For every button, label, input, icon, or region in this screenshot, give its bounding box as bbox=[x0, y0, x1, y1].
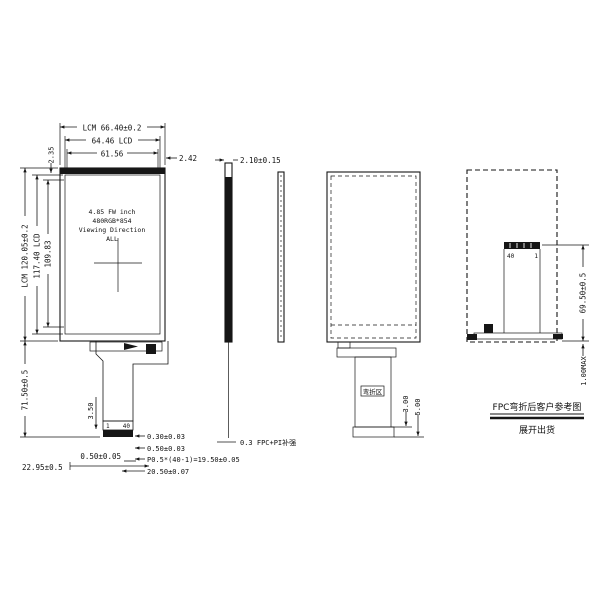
pin-pitch-b-dim: 0.50±0.03 bbox=[147, 445, 185, 453]
lcm-width-dim: LCM 66.40±0.2 bbox=[83, 124, 142, 133]
right-border-dim: 2.42 bbox=[179, 154, 197, 163]
lcd-outline bbox=[65, 175, 160, 334]
engineering-drawing: 4.85 FW inch 480RGB*854 Viewing Directio… bbox=[0, 0, 600, 600]
aa-height-dim: 109.83 bbox=[44, 240, 53, 267]
back-inner-dashed bbox=[331, 176, 416, 338]
fpc-pin1-label: 1 bbox=[106, 423, 110, 430]
fpc-note-text: 0.3 FPC+PI补强 bbox=[240, 438, 296, 447]
folded-pin40-label: 40 bbox=[507, 253, 515, 260]
lcm-top-band bbox=[60, 168, 165, 174]
spec-resolution: 480RGB*854 bbox=[92, 217, 131, 225]
bend-zone-label: 弯折区 bbox=[363, 387, 383, 396]
fpc-edge-offset-dim: 0.50±0.05 bbox=[80, 452, 121, 461]
fpc-pin40-label: 40 bbox=[123, 423, 131, 430]
spec-size: 4.85 FW inch bbox=[89, 208, 136, 216]
lcm-height-dim: LCM 120.05±0.2 bbox=[21, 224, 30, 287]
folded-note: FPC弯折后客户参考图 bbox=[493, 401, 582, 413]
spec-viewing-all: ALL bbox=[106, 235, 118, 243]
folded-right-foot bbox=[553, 334, 563, 339]
fpc-unfolded-shoulder bbox=[337, 348, 396, 357]
lcm-outline bbox=[60, 168, 165, 341]
unfolded-note: 展开出货 bbox=[519, 424, 555, 436]
lcd-width-dim: 64.46 LCD bbox=[92, 137, 133, 146]
back-view-folded: 40 1 69.50±0.5 1.00MAX bbox=[467, 170, 589, 386]
bend-a-dim: 3.00 bbox=[402, 396, 410, 413]
thickness-dim: 2.10±0.15 bbox=[240, 156, 281, 165]
front-fpc: 1 40 bbox=[90, 341, 168, 437]
lcd-height-dim: 117.40 LCD bbox=[33, 233, 42, 279]
top-dimensions: LCM 66.40±0.2 64.46 LCD 61.56 2.42 2.35 bbox=[48, 122, 198, 173]
fpc-arrow-mark bbox=[124, 343, 138, 350]
back-fpc-step bbox=[338, 342, 350, 348]
side-profile-body bbox=[226, 177, 232, 342]
bottom-dimensions: 0.50±0.05 22.95±0.5 0.30±0.03 0.50±0.03 … bbox=[22, 433, 240, 476]
fpc-position-dim: 22.95±0.5 bbox=[22, 463, 63, 472]
folded-fpc-sides bbox=[504, 249, 540, 333]
spec-viewing-direction: Viewing Direction bbox=[79, 226, 146, 234]
folded-left-foot bbox=[467, 334, 477, 340]
fold-height-dim: 69.50±0.5 bbox=[579, 273, 588, 314]
back-view-unfolded: 弯折区 3.00 5.00 bbox=[327, 172, 424, 437]
folded-bottom-bar bbox=[474, 333, 562, 339]
fpc-component bbox=[146, 344, 156, 354]
fpc-outline bbox=[96, 341, 168, 421]
fpc-tail-dim: 3.50 bbox=[87, 403, 95, 420]
fpc-unfolded-end bbox=[353, 427, 394, 437]
fold-gap-dim: 1.00MAX bbox=[580, 355, 588, 385]
side-view-secondary bbox=[278, 172, 284, 342]
bend-b-dim: 5.00 bbox=[414, 399, 422, 416]
top-border-dim: 2.35 bbox=[48, 147, 56, 164]
folded-connector bbox=[504, 242, 540, 249]
connector-width-dim: 20.50±0.07 bbox=[147, 468, 189, 476]
folded-component bbox=[484, 324, 493, 333]
lcd-module-drawing-page: 4.85 FW inch 480RGB*854 Viewing Directio… bbox=[0, 0, 600, 600]
pin-span-dim: P0.5*(40-1)=19.50±0.05 bbox=[147, 456, 240, 464]
front-view: 4.85 FW inch 480RGB*854 Viewing Directio… bbox=[60, 168, 165, 341]
folded-pin1-label: 1 bbox=[534, 253, 538, 260]
notes-block: FPC弯折后客户参考图 展开出货 bbox=[490, 401, 584, 436]
aa-width-dim: 61.56 bbox=[101, 150, 124, 159]
fpc-length-dim: 71.50±0.5 bbox=[21, 370, 30, 411]
back-outline bbox=[327, 172, 420, 342]
pin-pitch-a-dim: 0.30±0.03 bbox=[147, 433, 185, 441]
fpc-connector bbox=[103, 430, 133, 437]
